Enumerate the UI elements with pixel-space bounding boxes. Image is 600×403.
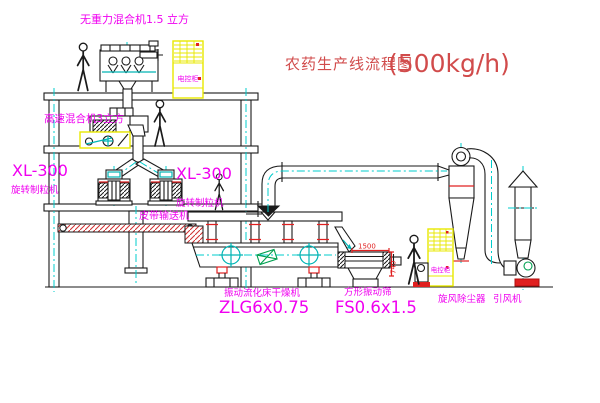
screen-model-label: FS0.6x1.5	[335, 298, 417, 317]
fluid-bed-dryer	[188, 212, 342, 287]
screen-name-label: 方形振动筛	[344, 286, 392, 298]
fan-label: 引风机	[493, 293, 522, 305]
dryer-spring-mount-left	[206, 267, 238, 287]
gravity-mixer-label: 无重力混合机1.5 立方	[80, 12, 189, 26]
belt-conveyor-label: 皮带输送机	[139, 209, 189, 222]
cabinet-top-label: 电控柜	[178, 74, 199, 83]
dim-width-text: 1500	[358, 243, 376, 251]
granulator-left-name: 旋转制粒机	[11, 184, 59, 196]
process-flow-diagram: 电控柜	[0, 0, 600, 403]
worker-second-floor	[154, 100, 165, 146]
cyclone-separator	[449, 143, 516, 271]
dryer-spring-mount-right	[298, 267, 330, 287]
exhaust-duct	[246, 162, 449, 217]
control-cabinet-bottom: 电控柜	[428, 229, 453, 286]
worker-top-floor	[78, 43, 89, 90]
induced-draft-fan	[504, 259, 539, 286]
zero-gravity-mixer	[100, 41, 163, 112]
granulator-right-name: 旋转制粒机	[176, 197, 224, 209]
diagram-title-capacity: (500kg/h)	[388, 49, 510, 78]
granulator-left-model: XL-300	[12, 161, 68, 180]
dryer-model-label: ZLG6x0.75	[219, 298, 309, 317]
dim-height-text: 740	[390, 261, 398, 274]
cyclone-label: 旋风除尘器	[438, 293, 486, 305]
cabinet-bottom-label: 电控柜	[431, 265, 451, 274]
control-cabinet-top: 电控柜	[173, 41, 203, 98]
high-speed-mixer-label: 高速混合机3立方	[44, 112, 124, 125]
vibrating-screen: 1500 740	[335, 227, 401, 287]
granulator-right-model: XL-300	[176, 164, 232, 183]
